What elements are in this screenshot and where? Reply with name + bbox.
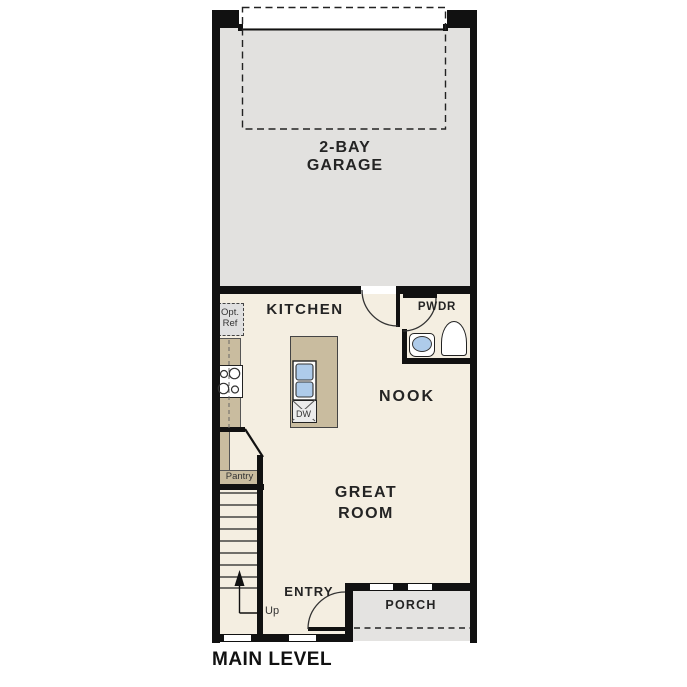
stairs-right-wall xyxy=(257,490,263,634)
garage-label: 2-BAY GARAGE xyxy=(285,139,405,174)
entry-label: ENTRY xyxy=(269,585,349,599)
nook-label: NOOK xyxy=(367,388,447,406)
window xyxy=(370,583,393,591)
right-exterior-wall xyxy=(470,10,477,643)
up-label: Up xyxy=(265,605,287,617)
entry-door-leaf xyxy=(308,627,345,631)
porch-label: PORCH xyxy=(371,599,451,613)
great-room-label: GREAT ROOM xyxy=(316,482,416,524)
powder-door-leaf xyxy=(403,294,437,298)
powder-room-label: PWDR xyxy=(407,301,467,314)
window xyxy=(289,634,316,642)
powder-bottom-wall xyxy=(402,358,470,364)
garage-front-wall-left xyxy=(212,10,239,28)
cooktop xyxy=(216,365,243,398)
optional-refrigerator-label: Opt. Ref xyxy=(218,307,242,329)
pantry-top-wall xyxy=(212,427,245,432)
floor-plan: Pantry xyxy=(0,0,687,687)
toilet xyxy=(441,321,467,356)
garage-kitchen-wall-left xyxy=(212,286,361,294)
pantry-label: Pantry xyxy=(219,470,260,485)
pantry-shelf xyxy=(219,432,230,470)
main-level-title: MAIN LEVEL xyxy=(212,650,342,671)
garage-front-wall-right xyxy=(447,10,477,28)
window xyxy=(408,583,432,591)
powder-sink-basin xyxy=(412,336,432,352)
kitchen-label: KITCHEN xyxy=(255,302,355,319)
garage-entry-door-leaf xyxy=(396,286,400,327)
window xyxy=(224,634,251,642)
dishwasher-label: DW xyxy=(294,409,313,419)
garage-kitchen-wall-right xyxy=(397,286,470,294)
